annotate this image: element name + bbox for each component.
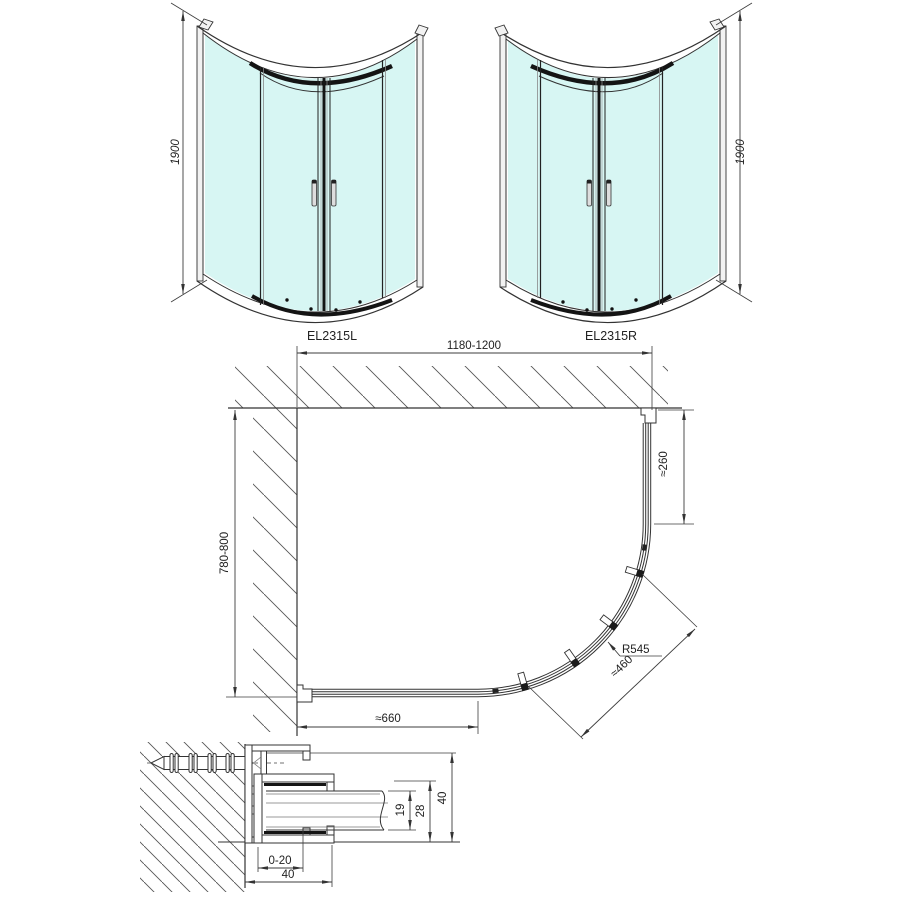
- section-detail: 0-20 40 19 28 40: [140, 742, 460, 892]
- dim-plan-depth-text: 780-800: [219, 532, 231, 574]
- glass-break-line: [380, 791, 384, 830]
- track-right-straight: [643, 423, 651, 524]
- technical-drawing-canvas: 1900 EL2315L 1900 EL2315R: [0, 0, 900, 900]
- dim-plan-width-text: 1180-1200: [447, 340, 501, 352]
- track-bottom-straight: [312, 689, 478, 697]
- front-right-view: [495, 3, 752, 323]
- plan-view: 1180-1200 780-800 ≈260 ≈660 R545: [219, 340, 697, 739]
- left-frame-profile: [197, 26, 203, 281]
- dim-plan-entry-right-text: ≈260: [658, 451, 670, 477]
- dim-section-glass: 19: [388, 791, 416, 830]
- wall-profile-bottom-left: [297, 685, 312, 702]
- dim-section-glass-text: 19: [395, 804, 407, 817]
- wall-profile-top-right: [641, 408, 656, 423]
- dim-plan-diagonal-text: ≈460: [609, 654, 636, 680]
- adjustable-profile: [254, 774, 334, 843]
- wall-hatch-top: [235, 366, 668, 408]
- front-elevation-shapes: [171, 3, 428, 323]
- wall-hatch-left: [253, 408, 297, 732]
- right-frame-profile: [417, 32, 423, 287]
- model-label-right: EL2315R: [585, 329, 637, 343]
- model-label-left: EL2315L: [307, 329, 357, 343]
- dim-height-left: 1900: [170, 139, 182, 165]
- dim-plan-radius: R545: [608, 642, 662, 656]
- dim-height-right: 1900: [735, 139, 747, 165]
- dim-section-width-text: 40: [282, 869, 295, 881]
- dim-plan-entry-bottom-text: ≈660: [375, 713, 401, 725]
- door-handle-left: [312, 180, 317, 206]
- dim-plan-diagonal: ≈460: [528, 574, 697, 739]
- dim-plan-entry-right: ≈260: [654, 410, 694, 524]
- dim-section-height: 40: [437, 753, 452, 842]
- door-handle-right: [332, 180, 337, 206]
- dim-section-adjust-text: 0-20: [268, 855, 291, 867]
- dim-section-channel-text: 28: [415, 805, 427, 818]
- glass-panels: [205, 34, 415, 311]
- dim-plan-entry-bottom: ≈660: [297, 701, 478, 734]
- dim-section-height-text: 40: [437, 792, 449, 805]
- glass-panel-section: [266, 791, 388, 830]
